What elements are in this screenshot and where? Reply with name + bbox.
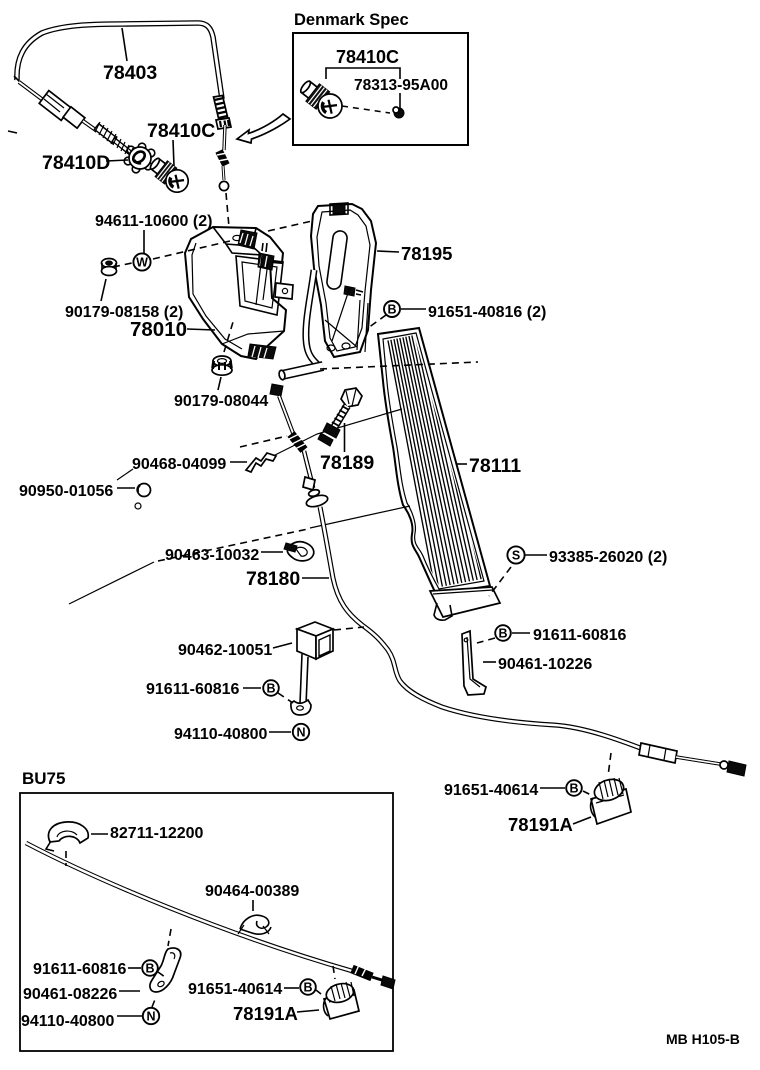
svg-text:S: S: [512, 549, 520, 563]
svg-text:90462-10051: 90462-10051: [178, 642, 272, 659]
svg-text:94110-40800: 94110-40800: [21, 1013, 115, 1030]
svg-text:W: W: [136, 256, 148, 270]
svg-text:90950-01056: 90950-01056: [19, 483, 113, 500]
svg-text:94611-10600 (2): 94611-10600 (2): [95, 213, 212, 230]
svg-text:78180: 78180: [246, 568, 300, 590]
svg-text:78410D: 78410D: [42, 152, 110, 174]
svg-text:90179-08044: 90179-08044: [174, 393, 268, 410]
svg-text:78410C: 78410C: [336, 47, 399, 67]
svg-text:78313-95A00: 78313-95A00: [354, 77, 448, 94]
svg-text:B: B: [266, 682, 275, 696]
svg-text:BU75: BU75: [22, 769, 65, 788]
svg-text:91611-60816: 91611-60816: [146, 681, 240, 698]
svg-text:91611-60816: 91611-60816: [533, 627, 627, 644]
svg-text:B: B: [569, 782, 578, 796]
svg-text:90461-08226: 90461-08226: [23, 986, 117, 1003]
svg-text:82711-12200: 82711-12200: [110, 825, 204, 842]
svg-text:N: N: [146, 1010, 155, 1024]
svg-text:91651-40614: 91651-40614: [444, 782, 538, 799]
svg-text:78191A: 78191A: [233, 1003, 298, 1024]
svg-text:90461-10226: 90461-10226: [498, 656, 592, 673]
svg-text:Denmark Spec: Denmark Spec: [294, 11, 409, 29]
svg-text:78195: 78195: [401, 243, 452, 264]
svg-text:78410C: 78410C: [147, 120, 215, 142]
svg-text:94110-40800: 94110-40800: [174, 726, 268, 743]
svg-text:78403: 78403: [103, 62, 157, 84]
svg-text:MB H105-B: MB H105-B: [666, 1031, 740, 1047]
svg-text:78111: 78111: [469, 455, 521, 477]
svg-text:B: B: [303, 981, 312, 995]
svg-text:78189: 78189: [320, 452, 374, 474]
svg-text:N: N: [296, 726, 305, 740]
svg-text:78010: 78010: [130, 318, 187, 341]
svg-text:91651-40816 (2): 91651-40816 (2): [428, 304, 546, 321]
svg-text:78191A: 78191A: [508, 814, 573, 835]
svg-text:B: B: [145, 962, 154, 976]
svg-text:93385-26020 (2): 93385-26020 (2): [549, 549, 667, 566]
svg-text:90464-00389: 90464-00389: [205, 883, 299, 900]
svg-text:90463-10032: 90463-10032: [165, 547, 259, 564]
svg-text:91611-60816: 91611-60816: [33, 961, 127, 978]
svg-text:B: B: [387, 303, 396, 317]
svg-text:B: B: [498, 627, 507, 641]
svg-text:91651-40614: 91651-40614: [188, 981, 282, 998]
svg-text:90468-04099: 90468-04099: [132, 456, 226, 473]
